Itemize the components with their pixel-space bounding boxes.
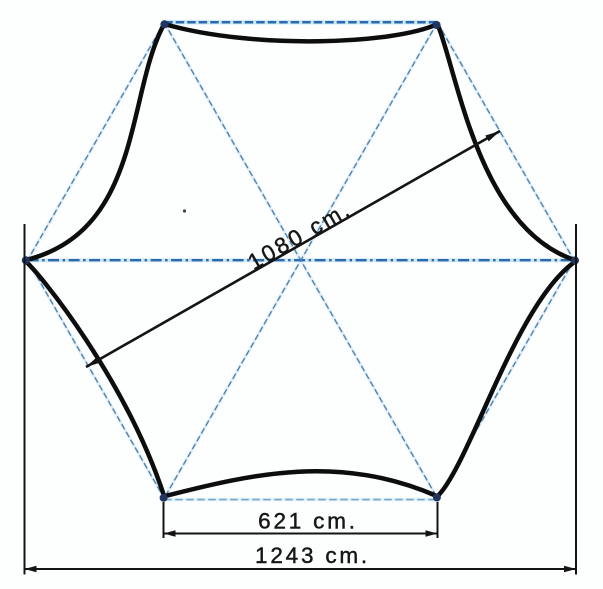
svg-text:1243 cm.: 1243 cm. — [255, 543, 370, 568]
svg-text:621 cm.: 621 cm. — [258, 509, 358, 534]
